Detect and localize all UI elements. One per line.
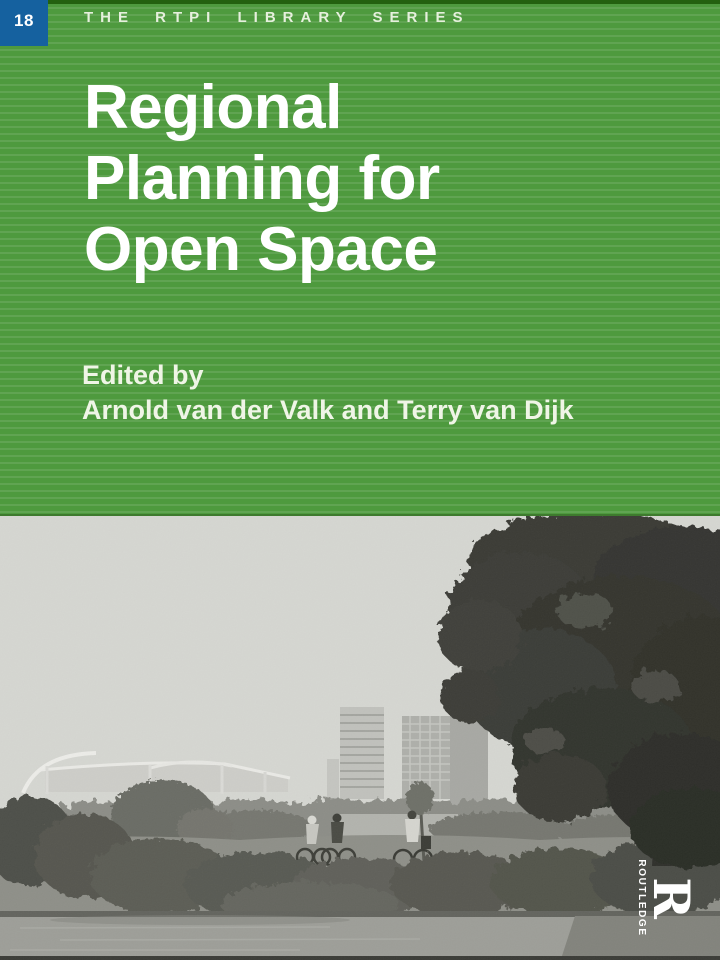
photo-grain [0, 516, 720, 960]
title-line-3: Open Space [84, 215, 437, 284]
book-title: Regional Planning for Open Space [84, 72, 440, 285]
editor-names: Arnold van der Valk and Terry van Dijk [82, 393, 574, 428]
series-number: 18 [14, 11, 34, 30]
park-scene [0, 516, 720, 960]
cover-photo: R ROUTLEDGE [0, 514, 720, 960]
series-number-badge: 18 [0, 0, 48, 46]
edited-by-label: Edited by [82, 358, 574, 393]
routledge-wordmark: ROUTLEDGE [637, 859, 648, 936]
top-edge-stripe [0, 0, 720, 4]
editors-block: Edited by Arnold van der Valk and Terry … [82, 358, 574, 428]
series-title: THE RTPI LIBRARY SERIES [84, 9, 470, 26]
routledge-r-icon: R [650, 877, 694, 919]
book-cover: 18 THE RTPI LIBRARY SERIES Regional Plan… [0, 0, 720, 960]
cover-top-panel: 18 THE RTPI LIBRARY SERIES Regional Plan… [0, 0, 720, 514]
routledge-logo: R ROUTLEDGE [629, 855, 701, 941]
title-line-1: Regional [84, 73, 342, 142]
title-line-2: Planning for [84, 144, 440, 213]
